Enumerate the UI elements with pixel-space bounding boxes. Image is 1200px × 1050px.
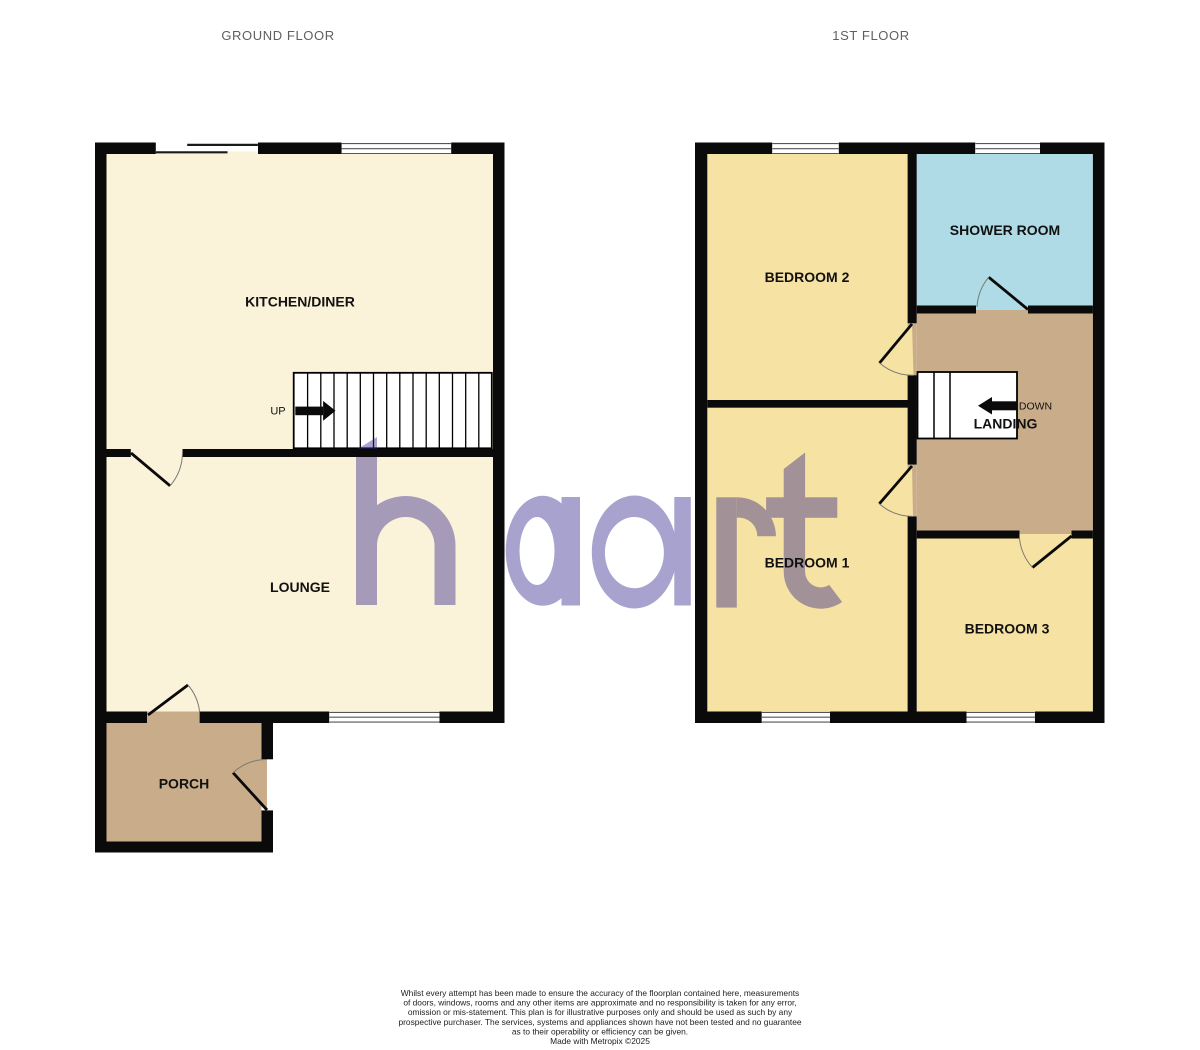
svg-text:as to their operability or eff: as to their operability or efficiency ca… [512, 1026, 688, 1036]
svg-text:Made with Metropix ©2025: Made with Metropix ©2025 [550, 1036, 650, 1046]
svg-text:SHOWER ROOM: SHOWER ROOM [950, 222, 1060, 238]
svg-text:PORCH: PORCH [159, 776, 210, 792]
svg-text:prospective purchaser. The ser: prospective purchaser. The services, sys… [398, 1017, 801, 1027]
svg-text:BEDROOM 1: BEDROOM 1 [765, 555, 850, 571]
svg-text:DOWN: DOWN [1019, 401, 1052, 413]
svg-text:UP: UP [270, 406, 285, 418]
svg-text:1ST FLOOR: 1ST FLOOR [832, 28, 909, 43]
svg-text:Whilst every attempt has been: Whilst every attempt has been made to en… [401, 988, 800, 998]
svg-text:LOUNGE: LOUNGE [270, 579, 330, 595]
svg-text:of doors, windows, rooms and a: of doors, windows, rooms and any other i… [403, 998, 796, 1008]
svg-text:LANDING: LANDING [974, 416, 1038, 432]
svg-text:KITCHEN/DINER: KITCHEN/DINER [245, 294, 355, 310]
svg-text:BEDROOM 3: BEDROOM 3 [965, 621, 1050, 637]
svg-text:GROUND FLOOR: GROUND FLOOR [221, 28, 334, 43]
svg-text:omission or mis-statement. Thi: omission or mis-statement. This plan is … [408, 1007, 793, 1017]
svg-text:BEDROOM 2: BEDROOM 2 [765, 269, 850, 285]
